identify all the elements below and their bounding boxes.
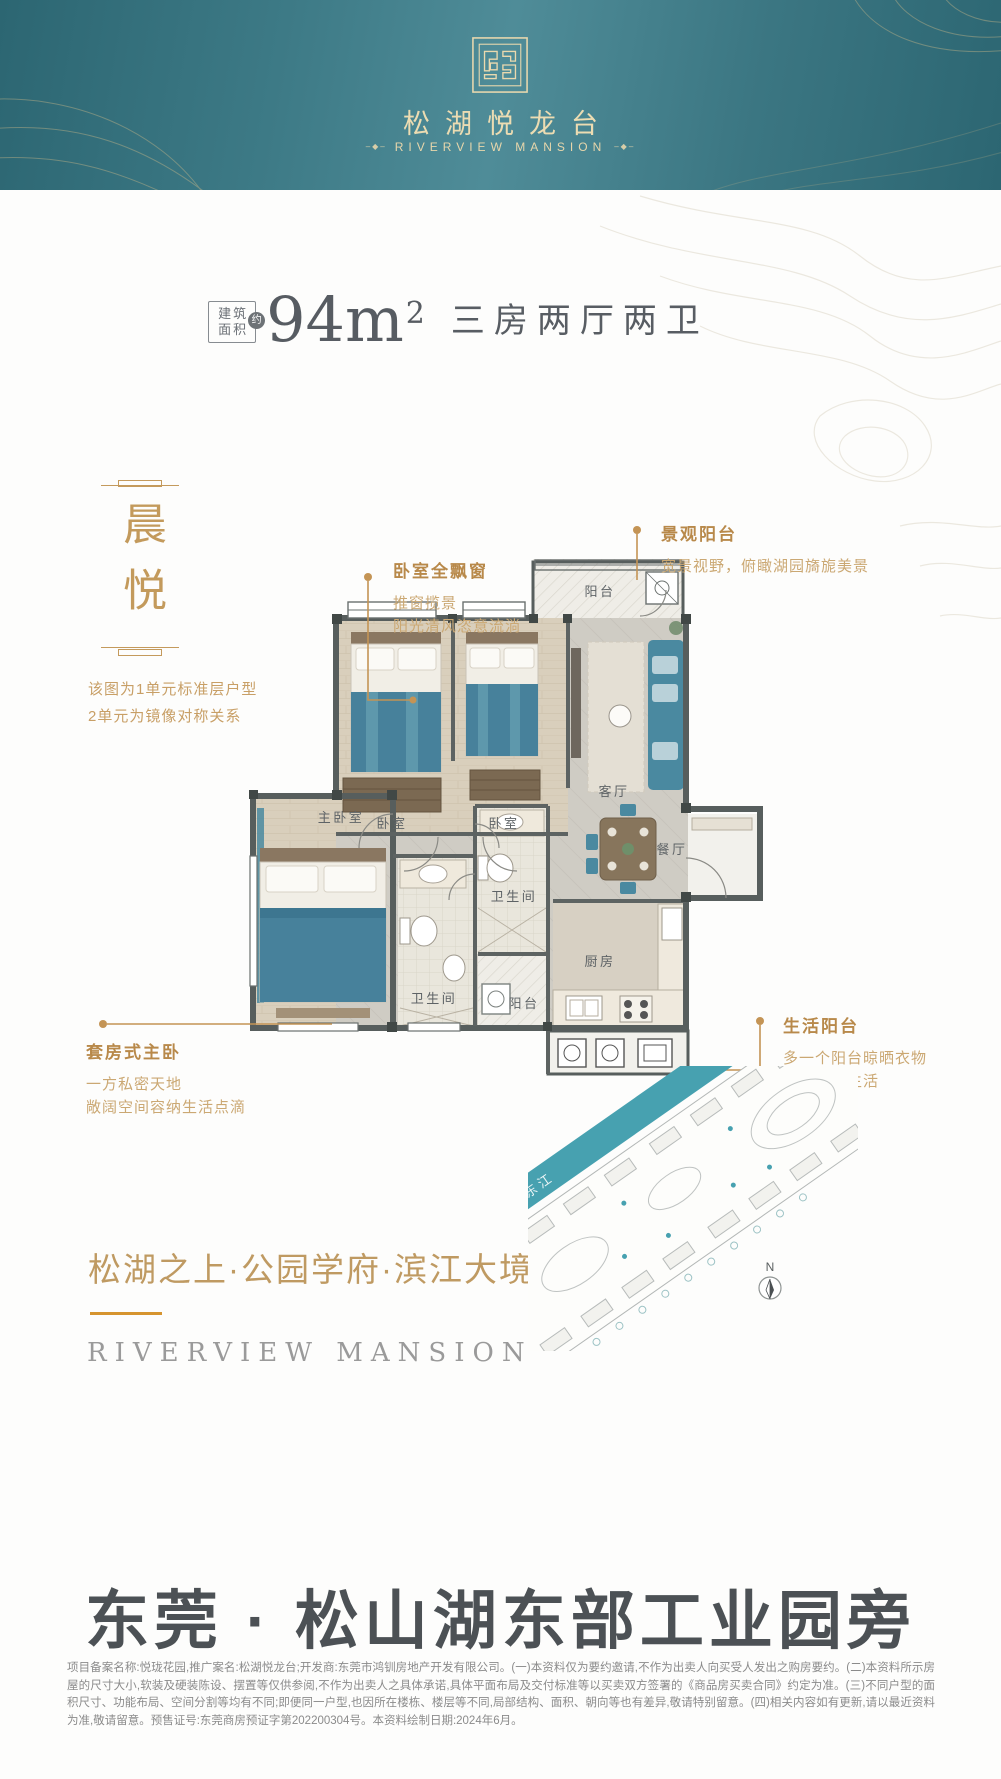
ornament-left: –◆– xyxy=(366,142,387,151)
callout-title: 套房式主卧 xyxy=(86,1038,246,1063)
room-label-bedroom2: 卧室 xyxy=(488,816,519,831)
callout-title: 卧室全飘窗 xyxy=(393,557,521,582)
compass-label: N xyxy=(766,1260,775,1274)
brand-name-cn: 松湖悦龙台 xyxy=(0,102,1001,141)
room-label-dining: 餐厅 xyxy=(656,842,687,857)
room-label-master: 主卧室 xyxy=(318,810,365,825)
unit-note: 该图为1单元标准层户型 2单元为镜像对称关系 xyxy=(88,676,257,730)
unit-note-line2: 2单元为镜像对称关系 xyxy=(88,703,257,730)
callout-bedroom-window: 卧室全飘窗 推窗揽景 阳光清风恣意流淌 xyxy=(393,557,521,638)
room-label-bath1: 卫生间 xyxy=(411,991,458,1006)
callout-line: 一方私密天地 xyxy=(86,1073,246,1096)
tagline-underline xyxy=(90,1312,162,1315)
room-label-kitchen: 厨房 xyxy=(584,954,615,969)
callout-master-suite: 套房式主卧 一方私密天地 敞阔空间容纳生活点滴 xyxy=(86,1038,246,1119)
area-superscript: 2 xyxy=(406,296,425,331)
callout-line: 宽景视野，俯瞰湖园旖旎美景 xyxy=(661,555,869,578)
room-label-balcony-bottom: 阳台 xyxy=(508,996,539,1011)
area-value: 94m2 xyxy=(266,284,425,350)
brand-logo xyxy=(471,36,529,94)
room-label-bedroom1: 卧室 xyxy=(376,816,407,831)
callout-line: 阳光清风恣意流淌 xyxy=(393,615,521,638)
ornament-top xyxy=(101,478,179,487)
layout-text: 三房两厅两卫 xyxy=(451,293,709,342)
room-label-living: 客厅 xyxy=(598,784,629,799)
header-banner: 松湖悦龙台 –◆–RIVERVIEW MANSION–◆– xyxy=(0,0,1001,190)
logo-seal-icon xyxy=(471,36,529,94)
tagline-cn: 松湖之上·公园学府·滨江大境 xyxy=(88,1243,534,1291)
area-label-box: 建筑 面积 约 xyxy=(208,301,256,343)
area-number: 94m xyxy=(266,283,404,356)
theme-block: 晨悦 xyxy=(100,478,180,656)
site-plan-map: 东江 xyxy=(528,1066,858,1351)
brand-name-en: RIVERVIEW MANSION xyxy=(395,140,606,154)
disclaimer-text: 项目备案名称:悦珑花园,推广案名:松湖悦龙台;开发商:东莞市鸿钏房地产开发有限公… xyxy=(67,1660,935,1730)
poster-page: 松湖悦龙台 –◆–RIVERVIEW MANSION–◆– 建筑 面积 约 94… xyxy=(0,0,1001,1779)
bed-bedroom2 xyxy=(466,632,540,800)
callout-line: 敞阔空间容纳生活点滴 xyxy=(86,1096,246,1119)
room-label-bath2: 卫生间 xyxy=(491,889,538,904)
spec-row: 建筑 面积 约 94m2 三房两厅两卫 xyxy=(0,286,959,350)
compass-icon: N xyxy=(759,1260,781,1299)
tagline-en: RIVERVIEW MANSION xyxy=(87,1338,533,1368)
callout-line: 推窗揽景 xyxy=(393,592,521,615)
header-contour-decoration xyxy=(0,0,1001,190)
theme-title-vertical: 晨悦 xyxy=(108,501,172,633)
ornament-bottom xyxy=(101,647,179,656)
unit-note-line1: 该图为1单元标准层户型 xyxy=(88,676,257,703)
callout-title: 景观阳台 xyxy=(661,520,869,545)
brand-name-en-row: –◆–RIVERVIEW MANSION–◆– xyxy=(0,138,1001,156)
bed-bedroom1 xyxy=(343,632,441,812)
entry-vestibule xyxy=(692,818,752,830)
laundry-balcony xyxy=(482,984,510,1014)
callout-title: 生活阳台 xyxy=(783,1012,927,1037)
ornament-right: –◆– xyxy=(614,142,635,151)
location-title: 东莞 · 松山湖东部工业园旁 xyxy=(0,1570,1001,1662)
room-label-balcony-top: 阳台 xyxy=(584,584,615,599)
approx-badge: 约 xyxy=(248,312,265,329)
callout-view-balcony: 景观阳台 宽景视野，俯瞰湖园旖旎美景 xyxy=(661,520,869,578)
